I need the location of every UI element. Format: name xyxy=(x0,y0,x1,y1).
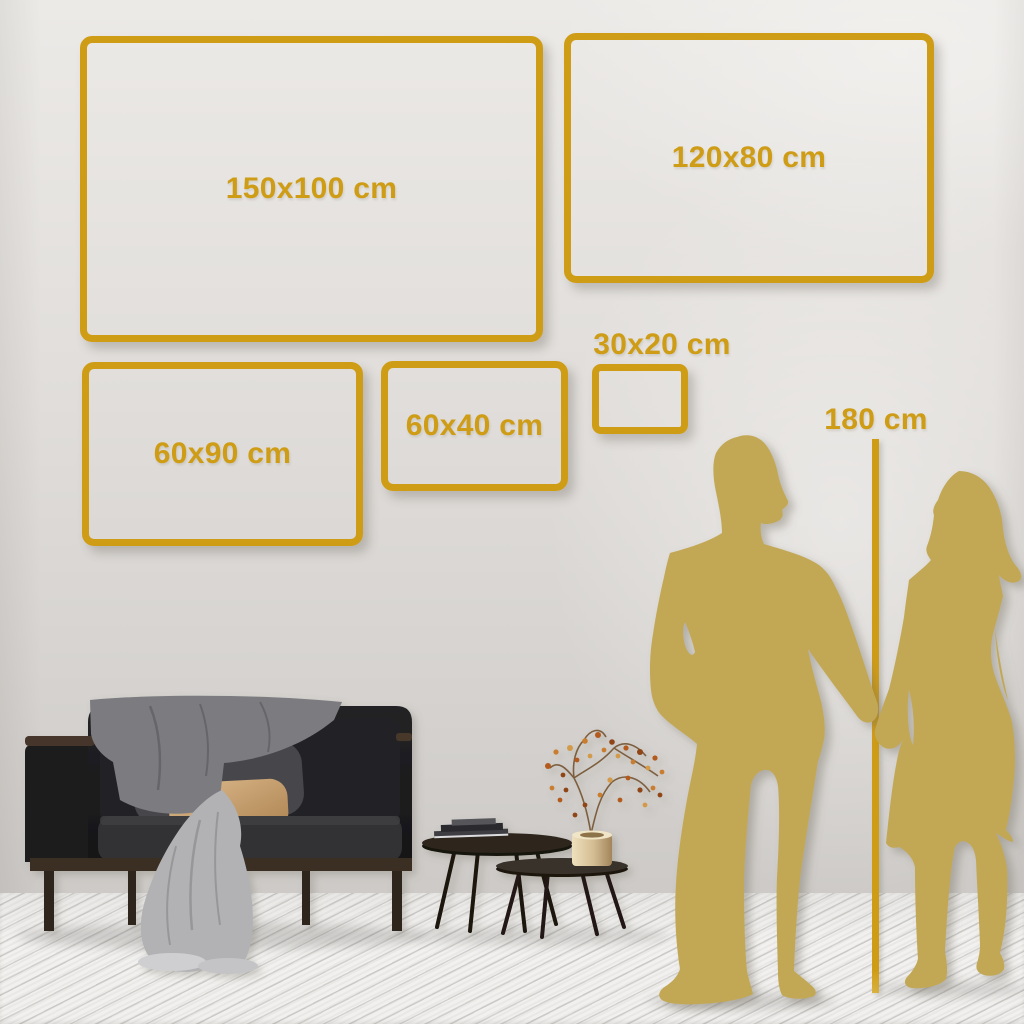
size-frame-120x80: 120x80 cm xyxy=(564,33,934,283)
size-label-150x100: 150x100 cm xyxy=(226,172,398,206)
size-frame-60x40: 60x40 cm xyxy=(381,361,568,491)
floor xyxy=(0,893,1024,1024)
size-frame-30x20: 30x20 cm xyxy=(592,364,688,434)
size-label-120x80: 120x80 cm xyxy=(672,141,827,175)
size-guide-image: 150x100 cm 120x80 cm 60x90 cm 60x40 cm 3… xyxy=(0,0,1024,1024)
height-reference-label: 180 cm xyxy=(824,403,928,437)
size-label-60x90: 60x90 cm xyxy=(154,437,292,471)
size-frame-150x100: 150x100 cm xyxy=(80,36,543,342)
height-reference-line xyxy=(872,439,879,993)
size-label-60x40: 60x40 cm xyxy=(406,409,544,443)
size-frame-60x90: 60x90 cm xyxy=(82,362,363,546)
size-label-30x20: 30x20 cm xyxy=(593,328,731,362)
